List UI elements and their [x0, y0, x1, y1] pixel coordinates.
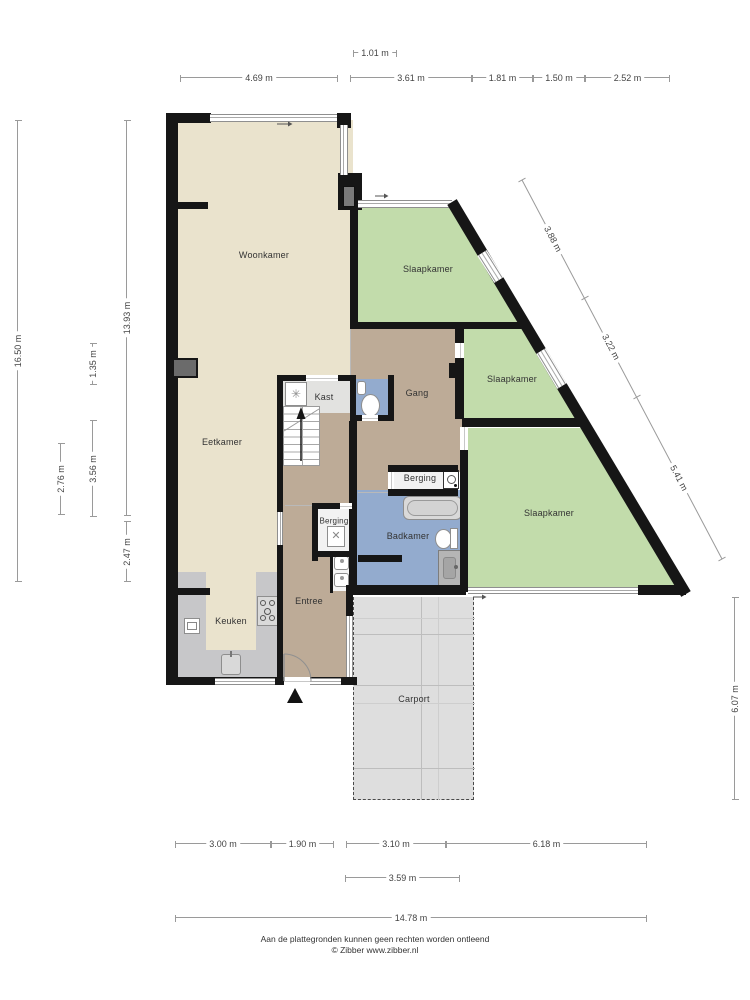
dimension-top-inset: 1.01 m	[353, 52, 397, 53]
dimension-left-bottom: 2.47 m	[126, 521, 127, 582]
dimension-left-total: 16.50 m	[17, 120, 18, 582]
room-label-berging-washok: Berging	[404, 473, 436, 483]
dimension-top-4: 1.50 m	[533, 77, 585, 78]
dimension-top-2: 3.61 m	[350, 77, 472, 78]
room-label-eetkamer: Eetkamer	[202, 437, 242, 447]
room-label-keuken: Keuken	[215, 616, 247, 626]
dimension-bottom-1: 3.00 m	[175, 843, 271, 844]
room-label-gang: Gang	[406, 388, 429, 398]
room-label-berging-hal: Berging	[320, 517, 349, 526]
entrance-arrow	[287, 688, 303, 703]
dimension-bottom-carport: 3.59 m	[345, 877, 460, 878]
dimension-top-3: 1.81 m	[472, 77, 533, 78]
disclaimer-text: Aan de plattegronden kunnen geen rechten…	[0, 934, 750, 944]
dimension-bottom-2: 1.90 m	[271, 843, 334, 844]
dimension-left-main: 13.93 m	[126, 120, 127, 516]
room-label-carport: Carport	[398, 694, 429, 704]
floorplan-canvas: ✕ ✳	[0, 0, 750, 1000]
dimension-top-5: 2.52 m	[585, 77, 670, 78]
dimension-bottom-3: 3.10 m	[346, 843, 446, 844]
dimension-bottom-4: 6.18 m	[446, 843, 647, 844]
dimension-right: 6.07 m	[734, 597, 735, 800]
dimension-bottom-total: 14.78 m	[175, 917, 647, 918]
room-label-kast: Kast	[315, 392, 334, 402]
copyright-text: © Zibber www.zibber.nl	[0, 945, 750, 955]
dimension-top-1: 4.69 m	[180, 77, 338, 78]
room-label-slaapkamer1: Slaapkamer	[403, 264, 453, 274]
dimension-left-mid-upper: 1.35 m	[92, 343, 93, 385]
room-label-slaapkamer2: Slaapkamer	[487, 374, 537, 384]
room-label-woonkamer: Woonkamer	[239, 250, 289, 260]
room-label-entree: Entree	[295, 596, 323, 606]
plan-overlay	[0, 0, 750, 1000]
room-label-badkamer: Badkamer	[387, 531, 430, 541]
door-swing-arc	[284, 654, 311, 681]
dimension-left-mid-lower: 3.56 m	[92, 420, 93, 517]
room-label-slaapkamer3: Slaapkamer	[524, 508, 574, 518]
dimension-left-inner: 2.76 m	[60, 443, 61, 515]
